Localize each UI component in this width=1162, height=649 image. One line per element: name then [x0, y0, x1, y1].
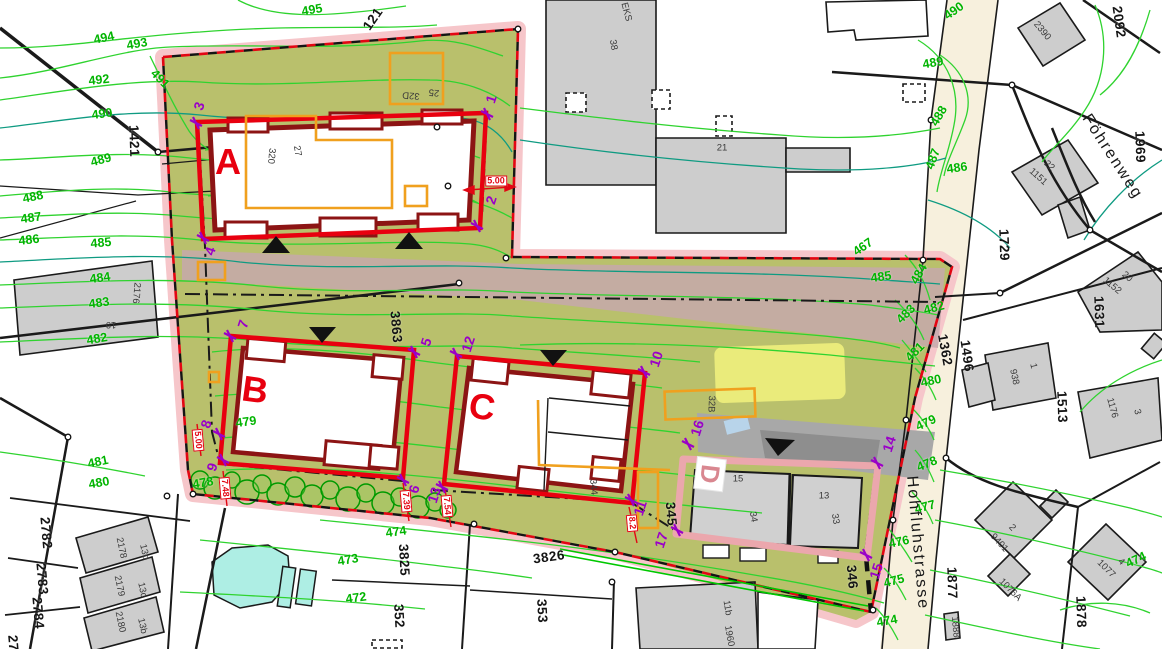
building-number-label: 938	[1008, 368, 1021, 385]
building-number-label: 38	[607, 39, 618, 51]
contour-label: 479	[235, 414, 257, 429]
building-number-label: 1888	[949, 616, 960, 638]
parcel-number-label: 1729	[997, 229, 1012, 261]
building-number-label: 13d	[138, 543, 151, 560]
dimension-label: 5.00	[192, 429, 205, 451]
map-canvas[interactable]	[0, 0, 1162, 649]
parcel-number-label: 1496	[958, 339, 976, 373]
parcel-number-label: 1631	[1092, 296, 1107, 328]
building-number-label: 320	[266, 148, 277, 165]
parcel-number-label: 2784	[30, 596, 46, 629]
building-number-label: 32D	[402, 90, 420, 101]
block-letter-label: C	[467, 387, 498, 426]
parcel-number-label: 2782	[38, 516, 54, 549]
building-number-label: 19	[106, 319, 117, 329]
parcel-number-label: 345	[663, 501, 679, 526]
building-number-label: 13b	[136, 617, 149, 634]
building-number-label: 21	[717, 143, 728, 153]
building-number-label: 27	[291, 145, 302, 157]
contour-label: 485	[870, 269, 892, 284]
site-plan-map[interactable]: 4954944934924914904894884874864854844834…	[0, 0, 1162, 649]
dimension-label: 7.54	[441, 495, 454, 517]
parcel-number-label: 1878	[1074, 596, 1089, 628]
parcel-number-label: 2092	[1110, 5, 1128, 39]
building-number-label: 344	[588, 479, 599, 496]
block-letter-label: B	[240, 370, 271, 409]
block-letter-label: A	[215, 144, 241, 180]
parcel-number-label: 1421	[127, 125, 142, 157]
contour-label: 483	[88, 295, 110, 310]
building-number-label: 1960	[722, 625, 735, 647]
building-number-label: 25	[428, 87, 439, 97]
contour-label: 484	[89, 270, 111, 285]
contour-label: 490	[91, 106, 113, 121]
parcel-number-label: 1877	[945, 567, 960, 599]
dimension-label: 7.39	[400, 490, 413, 512]
special-zone-yellow	[714, 343, 846, 404]
building-number-label: 33	[829, 513, 840, 525]
contour-label: 492	[88, 73, 110, 88]
parcel-number-label: 27	[6, 634, 21, 649]
parcel-number-label: 1969	[1133, 131, 1148, 163]
building-number-label: 34	[747, 511, 758, 523]
building-number-label: 32B	[706, 395, 716, 412]
parcel-number-label: 352	[392, 604, 407, 629]
block-letter-label: D	[694, 457, 726, 491]
building-number-label: 15	[733, 474, 744, 484]
dimension-label: 7.48	[219, 477, 232, 499]
contour-label: 474	[385, 524, 407, 539]
parcel-number-label: 2783	[34, 562, 50, 595]
contour-label: 472	[345, 590, 367, 605]
building-number-label: 13	[819, 491, 830, 501]
building-number-label: 11b	[721, 600, 733, 617]
dimension-label: 5.00	[485, 176, 507, 187]
parcel-number-label: 3825	[396, 544, 411, 577]
parcel-number-label: 3863	[388, 310, 404, 343]
contour-label: 486	[946, 160, 968, 175]
contour-label: 487	[20, 210, 42, 225]
contour-label: 485	[90, 236, 112, 250]
building-number-label: 13c	[136, 582, 148, 599]
building-number-label: 2176	[130, 282, 141, 304]
dimension-label: 8.2	[626, 514, 638, 531]
parcel-number-label: 353	[535, 599, 550, 624]
parcel-number-label: 346	[844, 564, 860, 589]
contour-label: 486	[18, 233, 40, 248]
parcel-number-label: 1513	[1055, 391, 1070, 423]
